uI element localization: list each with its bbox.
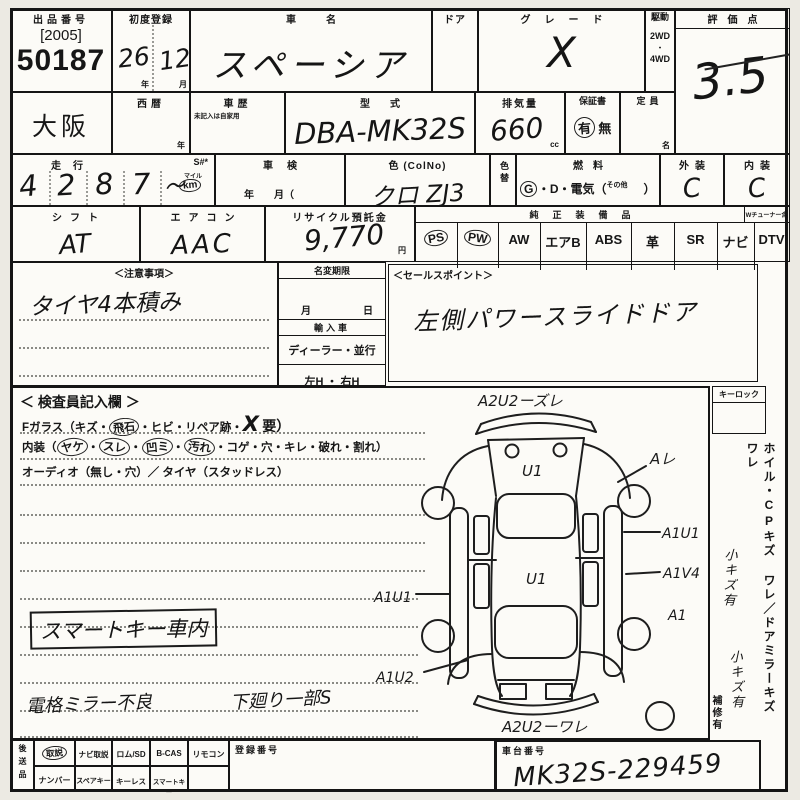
model-code-label: 型式 (286, 93, 474, 110)
empty-cell (188, 766, 229, 792)
recycle-deposit-value: 9,770 (303, 218, 386, 258)
fuel-options: ・D・電気（ (538, 182, 607, 196)
car-top-view-svg: A2U2ーズレ U1 U1 Aレ A1U1 A1V4 A1 A1U1 A1U2 … (350, 388, 710, 738)
bcas-cell: B-CAS (150, 740, 188, 766)
dotted-line (19, 319, 269, 321)
damage-label-left-door: A1U1 (373, 590, 412, 606)
first-reg-year: 26 (117, 41, 152, 73)
rear-left-fender (448, 654, 492, 684)
car-name-label: 車名 (191, 9, 431, 26)
fuel-cell: 燃料 G・D・電気（その他） (516, 154, 660, 206)
pointer-right-fender (618, 466, 646, 482)
equip-ps-circled: PS (423, 228, 449, 248)
mirror-handwritten-answer: 小キズ有 (724, 650, 746, 741)
windshield (497, 494, 575, 538)
aircon-cell: エアコン AAC (140, 206, 265, 262)
warranty-label: 保証書 (566, 93, 619, 107)
separator-dot: ・ (215, 442, 227, 454)
number-plate-cell: ナンバー (34, 766, 75, 792)
washer-nozzle-right (554, 444, 567, 457)
warranty-cell: 保証書 有 無 (565, 92, 620, 154)
warranty-no: 無 (598, 121, 611, 136)
equip-leather-cell: 革 (631, 222, 675, 270)
washer-nozzle-left (506, 445, 519, 458)
navi-manual-cell: ナビ取説 (75, 740, 112, 766)
remote-cell: リモコン (188, 740, 229, 766)
equipment-header-cell: 純正装備品 (416, 207, 745, 223)
damage-label-right-rear-door: A1V4 (662, 566, 700, 582)
tuner-note: Wチューナー含 (744, 207, 789, 219)
damage-label-left-rear: A1U2 (375, 670, 414, 686)
recycle-deposit-unit: 円 (398, 245, 406, 256)
chassis-number-box: 車台番号 MK32S-229459 (495, 740, 761, 792)
aircon-label: エアコン (141, 207, 264, 224)
shift-value: AT (10, 226, 140, 265)
western-year-label: 西暦 (113, 93, 189, 110)
interior-circled-1: ヤケ (56, 437, 88, 458)
model-code-value: DBA-MK32S (285, 111, 474, 152)
auction-sheet: 出品番号 [2005] 50187 初度登録 26 年 12 月 車名 スペーシ… (0, 0, 800, 800)
interior-grade: C (723, 170, 791, 209)
tuner-note-cell: Wチューナー含 (744, 207, 789, 223)
damage-mark-hood: U1 (522, 462, 543, 480)
rear-lamp-right (546, 684, 572, 699)
right-rear-window (583, 562, 598, 606)
interior-circled-2: スレ (98, 437, 130, 458)
dealer-parallel-label: ディーラー・並行 (279, 336, 385, 364)
divider (123, 171, 125, 205)
keyless: キーレス (116, 777, 146, 786)
mileage-digit-3: 8 (94, 166, 115, 201)
manual-cell: 取説 (34, 740, 75, 766)
repair-note: 補修有 (708, 695, 723, 745)
fglass-circled-item: 飛石 (109, 417, 140, 438)
sales-point-label: ＜セールスポイント＞ (389, 265, 757, 282)
car-name-cell: 車名 スペーシア (190, 8, 432, 92)
mileage-digit-2: 2 (56, 168, 76, 203)
capacity-label: 定員 (621, 93, 674, 107)
number-plate: ナンバー (39, 776, 71, 785)
remote: リモコン (193, 750, 225, 759)
underside-note: 下廻り一部S (229, 683, 332, 714)
cowl-line (488, 438, 584, 440)
capacity-unit: 名 (662, 140, 670, 151)
displacement-value: 660 (489, 111, 545, 148)
keylock-box: キーロック (712, 386, 766, 434)
model-code-cell: 型式 DBA-MK32S (285, 92, 475, 154)
navi-manual: ナビ取説 (79, 750, 109, 759)
smart-key: スマートキー (153, 779, 185, 796)
right-front-window (583, 514, 598, 552)
registration-number-label: 登録番号 (230, 741, 494, 756)
auction-number-cell: 出品番号 [2005] 50187 (10, 8, 112, 92)
mileage-cell: 走行 S#* 4 2 8 7 〜 マイル km (10, 154, 215, 206)
history-label: 車歴 (191, 93, 284, 110)
western-year-unit: 年 (177, 140, 185, 151)
spare-key-cell: スペアキー (75, 766, 112, 792)
divider (86, 171, 88, 205)
equip-ps-cell: PS (416, 222, 458, 268)
first-registration-cell: 初度登録 26 年 12 月 (112, 8, 190, 92)
first-reg-month-unit: 月 (179, 79, 187, 90)
door-label: ドア (433, 9, 477, 26)
equip-airbag-cell: エアB (540, 222, 587, 270)
displacement-label: 排気量 (476, 93, 564, 110)
rear-bumper-inner (478, 694, 594, 706)
equip-sr: SR (686, 232, 704, 247)
damage-label-front: A2U2ーズレ (477, 392, 563, 410)
fuel-other-label: その他 (607, 182, 628, 189)
left-front-window (474, 516, 489, 554)
interior-prefix: 内装（ (22, 442, 57, 454)
inspector-circle-mark (646, 702, 674, 730)
fuel-gasoline-circled: G (520, 180, 539, 197)
smart-key-cell: スマートキー (150, 766, 188, 792)
exterior-cell: 外装 C (660, 154, 724, 206)
grade-cell: グレード X (478, 8, 645, 92)
drive-label: 駆動 (646, 9, 674, 23)
interior-circled-4: 汚れ (183, 436, 216, 457)
equip-navi: ナビ (722, 235, 748, 250)
displacement-unit: cc (550, 140, 559, 149)
shift-cell: シフト AT (10, 206, 140, 262)
first-reg-month: 12 (157, 43, 193, 76)
left-rear-window (474, 564, 489, 608)
front-bumper-inner (476, 423, 596, 434)
equip-dtv: DTV (759, 232, 785, 247)
equip-sr-cell: SR (674, 222, 718, 270)
registration-number-box: 登録番号 (229, 740, 495, 792)
bcas: B-CAS (156, 749, 181, 758)
auction-number: 50187 (11, 44, 111, 78)
equip-abs: ABS (595, 232, 622, 247)
first-registration-label: 初度登録 (113, 9, 189, 26)
front-left-wheel (422, 487, 454, 519)
equip-pw-cell: PW (457, 222, 499, 268)
right-side-rail (604, 506, 622, 676)
rear-window (495, 606, 577, 658)
dotted-line (19, 375, 269, 377)
damage-mark-roof: U1 (526, 570, 547, 588)
equip-aw: AW (509, 232, 530, 247)
accessories-column-label-cell: 後送品 (10, 740, 34, 792)
grade-label: グレード (479, 9, 644, 26)
mirror-defect-note: 電格ミラー不良 (26, 688, 153, 718)
caution-text: タイヤ4本積み (28, 282, 181, 321)
equip-airbag: エアB (545, 235, 580, 250)
western-year-cell: 西暦 年 (112, 92, 190, 154)
region-value: 大阪 (11, 107, 111, 143)
score-value: 3.5 (689, 47, 772, 112)
rear-right-fender (580, 652, 624, 682)
dotted-line (19, 347, 269, 349)
left-side-rail (450, 508, 468, 678)
equipment-block: 純正装備品 Wチューナー含 PS PW AW エアB ABS 革 SR ナビ D… (415, 206, 790, 262)
interior-circled-3: 凹ミ (141, 437, 173, 458)
drive-4wd: 4WD (646, 54, 674, 64)
name-change-month: 月 (301, 302, 311, 317)
exterior-grade: C (660, 171, 725, 207)
interior-condition-line: 内装（ヤケ・スレ・凹ミ・汚れ・コゲ・穴・キレ・破れ・割れ） (22, 438, 388, 456)
aircon-value: AAC (141, 228, 265, 262)
first-reg-year-unit: 年 (141, 79, 149, 90)
interior-grade-label: 内装 (725, 155, 789, 172)
sales-point-text: 左側パワースライドドア (412, 292, 698, 337)
car-name-value: スペーシア (191, 38, 431, 87)
score-cell: 評価点 3.5 (675, 8, 790, 154)
door-cell: ドア (432, 8, 478, 92)
drive-cell: 駆動 2WD ・ 4WD (645, 8, 675, 92)
divider (49, 171, 51, 205)
name-change-label: 名変期限 (279, 263, 385, 279)
wheel-note: ホイル・CPキズ ワレ (762, 442, 776, 602)
separator-dot: ・ (130, 442, 142, 454)
rom-sd: ロム/SD (116, 750, 145, 759)
sales-point-box: ＜セールスポイント＞ 左側パワースライドドア (388, 264, 758, 382)
name-change-box: 名変期限 月 日 輸入車 ディーラー・並行 左H ・ 右H (278, 262, 386, 386)
pointer-left-rear (424, 660, 468, 672)
auction-number-label: 出品番号 (11, 9, 111, 26)
manual-circled: 取説 (41, 745, 67, 761)
capacity-cell: 定員 名 (620, 92, 675, 154)
drive-dot: ・ (646, 41, 674, 54)
region-cell: 大阪 (10, 92, 112, 154)
wheel-handwritten-answer: 小キズ有 (716, 548, 738, 649)
equip-pw-circled: PW (463, 228, 492, 248)
equip-navi-cell: ナビ (717, 222, 755, 270)
spare-key: スペアキー (76, 778, 111, 785)
inspection-cell: 車検 年 月（ (215, 154, 345, 206)
slash: ／ (762, 602, 776, 616)
fuel-close-paren: ） (628, 182, 656, 196)
mileage-digit-4: 7 (131, 167, 151, 202)
damage-label-right-front-door: A1U1 (661, 526, 700, 542)
rear-bumper-outer (474, 702, 598, 715)
mileage-unit-km-circled: km (178, 178, 202, 193)
inspection-fields: 年 月（ (244, 186, 294, 201)
equip-abs-cell: ABS (586, 222, 632, 270)
car-damage-diagram: A2U2ーズレ U1 U1 Aレ A1U1 A1V4 A1 A1U1 A1U2 … (350, 388, 710, 738)
keylock-label: キーロック (713, 387, 765, 403)
equip-leather: 革 (646, 235, 659, 250)
grade-value: X (479, 28, 644, 77)
equipment-label: 純正装備品 (416, 207, 744, 221)
pointer-right-rear-door (626, 572, 660, 574)
mileage-digit-1: 4 (17, 168, 39, 204)
fuel-label: 燃料 (517, 155, 659, 172)
displacement-cell: 排気量 660 cc (475, 92, 565, 154)
wheel-mirror-printed-note: ホイル・CPキズ ワレ／ドアミラーキズ ワレ (744, 442, 778, 742)
drive-2wd: 2WD (646, 31, 674, 41)
divider (152, 25, 154, 91)
import-label: 輸入車 (279, 319, 385, 336)
rear-lamp-left (500, 684, 526, 699)
color-cell: 色 (ColNo) クロ ZJ3 (345, 154, 490, 206)
history-cell: 車歴 未記入は自家用 (190, 92, 285, 154)
accessories-column-label: 後送品 (17, 744, 28, 783)
damage-label-rear: A2U2ーワレ (501, 718, 587, 736)
color-change-cell: 色替 (490, 154, 516, 206)
history-note: 未記入は自家用 (191, 110, 284, 120)
door-seams (468, 558, 604, 560)
color-label: 色 (ColNo) (346, 155, 489, 172)
warranty-yes-circled: 有 (573, 116, 596, 139)
color-change-label: 色替 (498, 161, 511, 185)
name-change-day: 日 (363, 302, 373, 317)
exterior-label: 外装 (661, 155, 723, 172)
caution-label: ＜注意事項＞ (11, 263, 277, 280)
front-right-wheel (618, 485, 650, 517)
shift-label: シフト (11, 207, 139, 224)
inspection-label: 車検 (216, 155, 344, 172)
separator-dot: ・ (173, 442, 185, 454)
equip-dtv-cell: DTV (754, 222, 789, 270)
damage-label-right-rear: A1 (667, 608, 686, 624)
caution-box: ＜注意事項＞ タイヤ4本積み (10, 262, 278, 386)
score-label: 評価点 (676, 9, 789, 29)
equip-aw-cell: AW (498, 222, 541, 270)
serial-label: S#* (193, 156, 208, 167)
rom-sd-cell: ロム/SD (112, 740, 150, 766)
interior-grade-cell: 内装 C (724, 154, 790, 206)
separator-dot: ・ (88, 442, 100, 454)
recycle-deposit-cell: リサイクル預託金 9,770 円 (265, 206, 415, 262)
smart-key-boxed-note: スマートキー車内 (30, 608, 218, 649)
auction-year: [2005] (11, 27, 111, 44)
keyless-cell: キーレス (112, 766, 150, 792)
audio-tire-line: オーディオ（無し・穴）／ タイヤ（スタッドレス） (22, 464, 289, 480)
damage-label-right-fender: Aレ (649, 450, 675, 468)
